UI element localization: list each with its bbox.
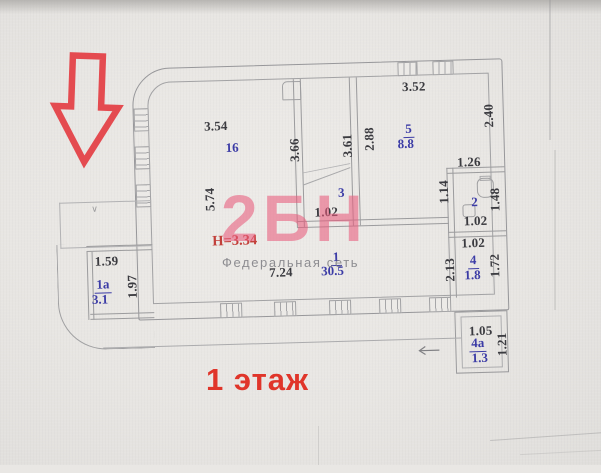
fold-line (554, 150, 556, 310)
window-icon (220, 303, 242, 319)
window-icon (135, 146, 151, 169)
window-icon (397, 62, 417, 77)
window-icon (379, 298, 401, 314)
dimension-label: 1.59 (95, 253, 119, 270)
watermark-logo: 2БН (221, 180, 368, 256)
dimension-label: 5.74 (201, 176, 218, 222)
dimension-label: 1.02 (461, 235, 485, 252)
photo-edge-shadow (0, 0, 601, 14)
porch-mark: ∨ (91, 204, 98, 215)
entrance-arrow-icon (415, 344, 441, 357)
window-icon (134, 108, 150, 131)
dimension-label: 3.52 (402, 78, 426, 95)
watermark-subtitle: Федеральная сеть (222, 255, 359, 270)
room-area: 1.8 (464, 267, 481, 283)
porch-outline (59, 200, 152, 249)
dimension-label: 3.54 (204, 118, 228, 135)
room-area: 3.1 (92, 291, 109, 307)
window-icon (429, 297, 451, 313)
down-arrow-icon (50, 51, 124, 169)
room-number: 16 (225, 140, 238, 156)
floor-title: 1 этаж (206, 362, 309, 398)
ground-line (103, 338, 461, 349)
room-area: 8.8 (397, 136, 414, 152)
dimension-label: 1.14 (435, 169, 452, 215)
dimension-label: 1.48 (487, 176, 504, 222)
dimension-label: 1.97 (124, 263, 141, 309)
fold-line (318, 426, 319, 465)
dimension-label: 2.88 (361, 116, 378, 162)
fold-line (549, 0, 551, 140)
dimension-label: 2.13 (442, 247, 459, 293)
photo-background: ∨ 3.54 3.52 1.26 1.59 7.24 1.02 1.02 1.0… (0, 0, 601, 465)
window-icon (432, 61, 453, 76)
window-icon (274, 301, 296, 317)
room-number: 2 (471, 194, 478, 210)
dimension-label: 1.21 (494, 321, 511, 367)
dimension-label: 1.72 (486, 242, 503, 288)
room-area: 1.3 (471, 350, 488, 366)
dimension-label: 3.61 (339, 122, 356, 168)
dimension-label: 1.26 (457, 154, 481, 171)
dimension-label: 3.66 (286, 127, 303, 173)
dimension-label: 1.02 (464, 213, 488, 230)
dimension-label: 2.40 (480, 92, 497, 138)
window-icon (329, 300, 351, 316)
